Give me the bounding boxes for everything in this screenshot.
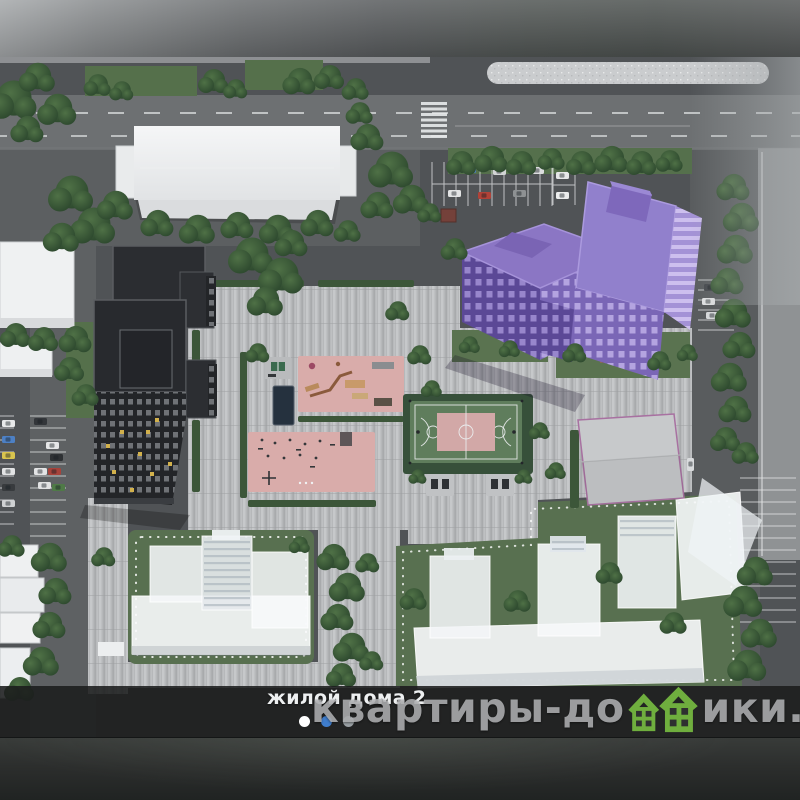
bottom-blur-bar <box>0 737 800 800</box>
watermark-text-prefix: квартиры-до <box>311 684 625 732</box>
rubber-pad <box>273 386 294 425</box>
green-houses-icon <box>627 681 701 735</box>
table-tennis-area <box>265 357 291 379</box>
carousel-dot[interactable] <box>299 716 310 727</box>
top-blur-bar <box>0 0 800 57</box>
fitness-area <box>248 432 375 492</box>
white-industrial-building <box>116 126 356 224</box>
watermark: квартиры-до ики.рф <box>311 681 800 735</box>
playground <box>298 356 404 412</box>
watermark-text-suffix: ики.рф <box>702 684 800 732</box>
kiosk <box>441 209 456 222</box>
ramp <box>98 642 124 656</box>
basketball-court <box>403 394 533 474</box>
haze <box>690 55 800 305</box>
gray-roof-building <box>578 414 684 505</box>
carousel-slide: жилой дома 2 квартиры-до ики.рф <box>0 0 800 800</box>
listing-photo[interactable] <box>0 0 800 800</box>
masterplan-render <box>0 0 800 800</box>
